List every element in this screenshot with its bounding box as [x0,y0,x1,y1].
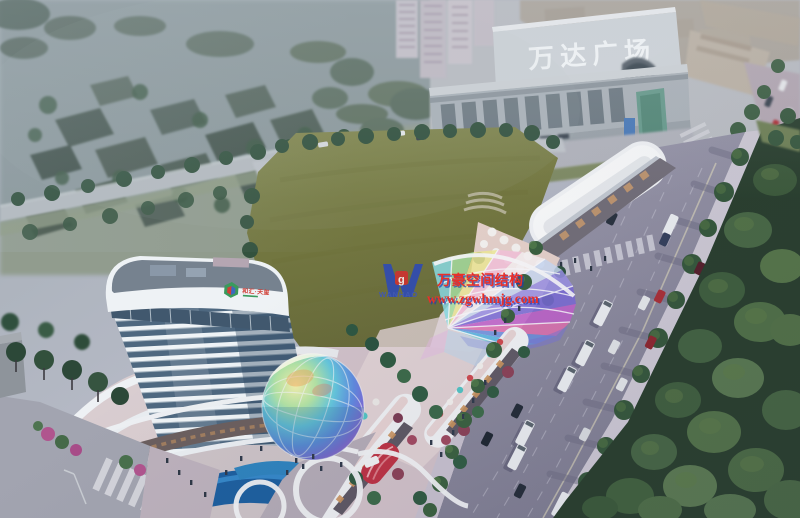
svg-text:WANHAO: WANHAO [379,290,418,299]
svg-text:www.zgwhmjg.com: www.zgwhmjg.com [427,291,539,306]
svg-text:万豪空间结构: 万豪空间结构 [436,272,523,289]
svg-text:g: g [398,274,405,286]
